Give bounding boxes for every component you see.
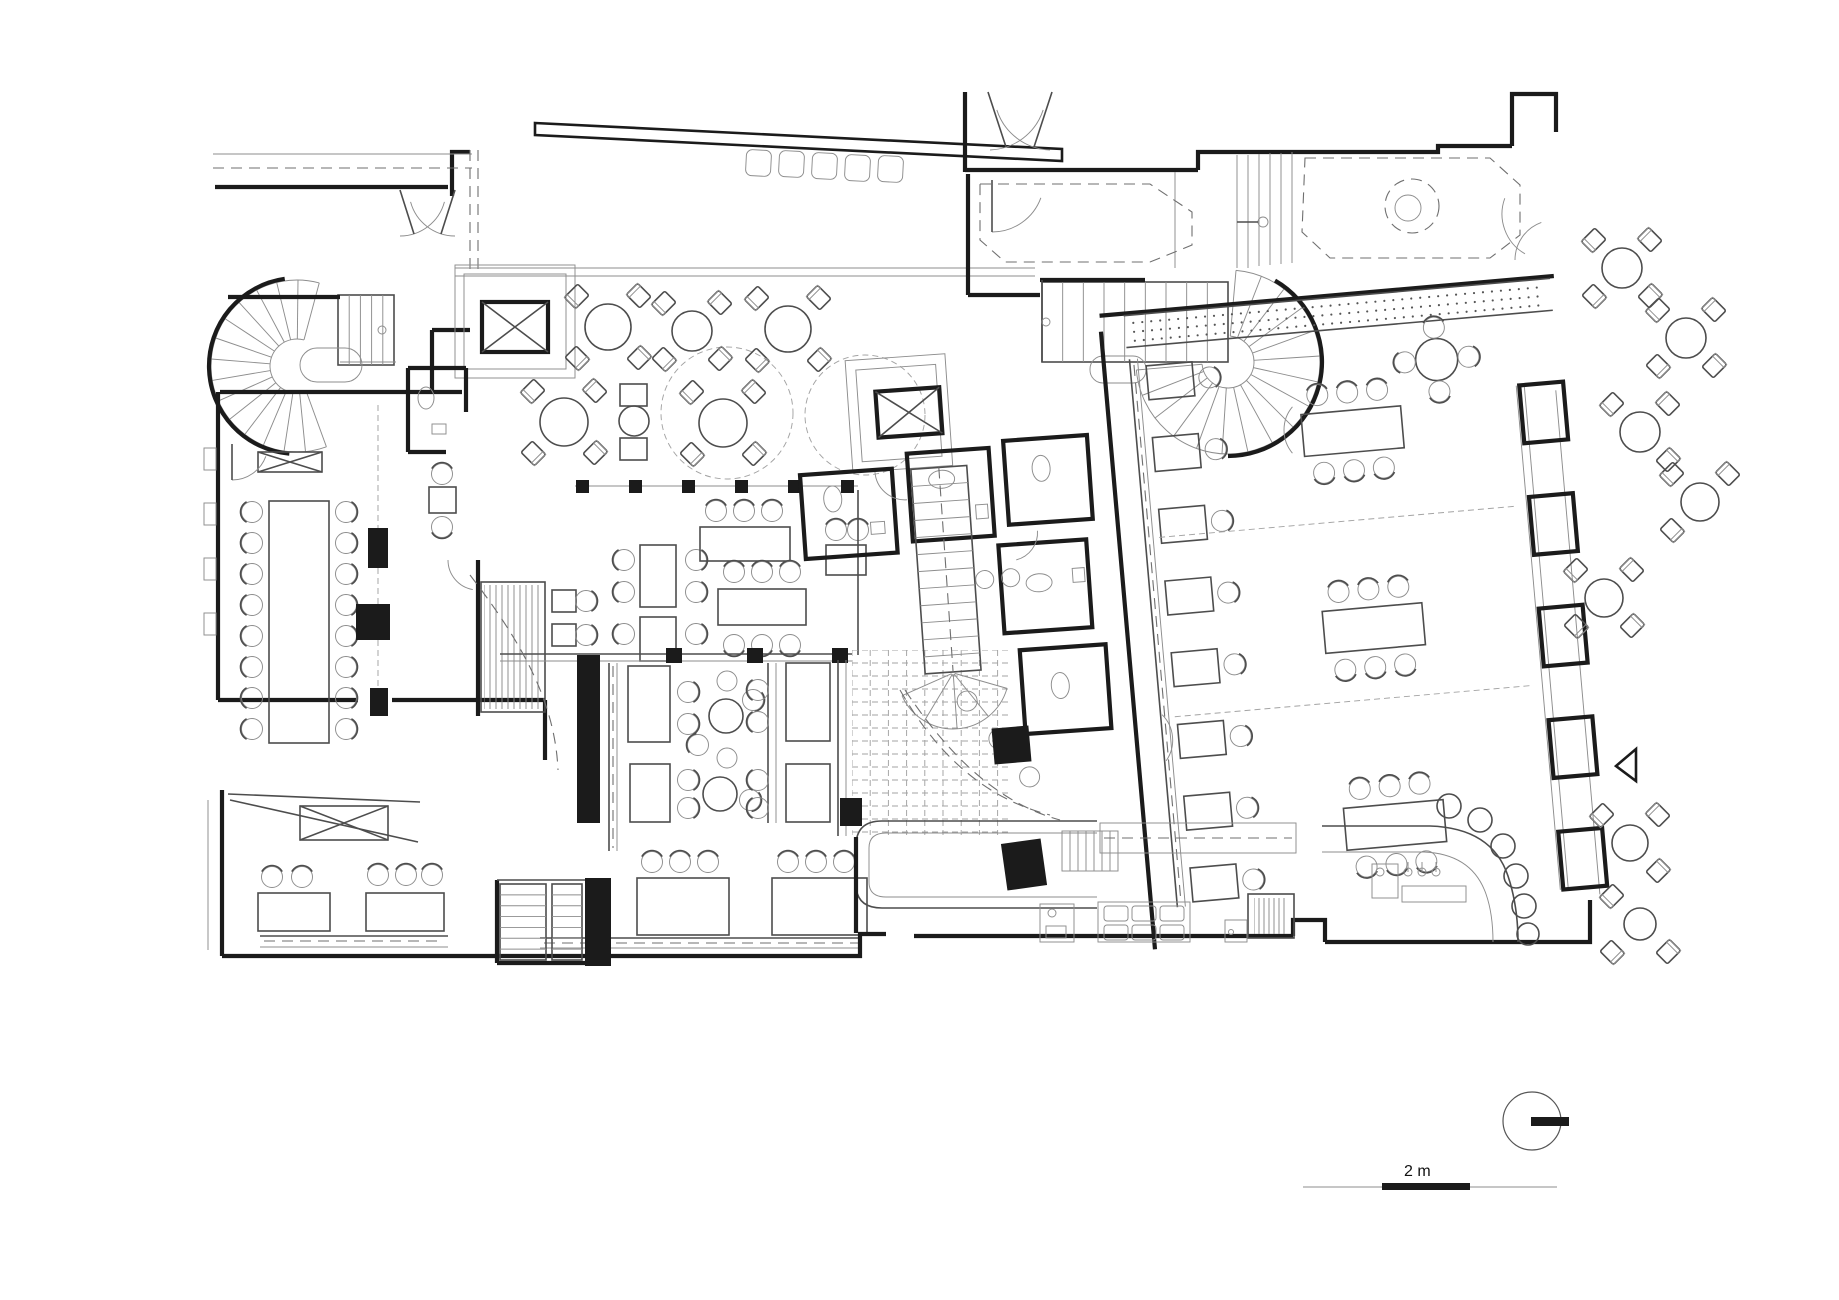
furniture-rect (1372, 864, 1398, 898)
furniture-rect (907, 448, 995, 542)
diamond-chair-seat (1582, 284, 1607, 309)
dot-band-dot (1356, 302, 1358, 304)
diamond-chair-seat (1646, 354, 1671, 379)
spiral-stair-east (968, 174, 1322, 456)
diamond-chair-back (691, 453, 705, 467)
floor-plan-drawing: 2 m (0, 0, 1839, 1300)
dot-band-dot (1268, 328, 1270, 330)
dot-band-dot (1447, 312, 1449, 314)
dot-band-dot (1286, 326, 1288, 328)
round-chair (614, 624, 635, 645)
dot-band-dot (1403, 316, 1405, 318)
furniture-rect (1160, 906, 1184, 921)
round-chair (688, 735, 709, 756)
diamond-chair-back (626, 283, 640, 297)
dot-band-dot (1303, 316, 1305, 318)
diamond-chair (708, 346, 733, 371)
round-chair (678, 714, 699, 735)
dining-a (575, 480, 869, 661)
diamond-chair-back (576, 357, 590, 371)
diamond-chair-seat (520, 379, 545, 404)
dot-band-dot (1160, 328, 1162, 330)
round-chair (614, 582, 635, 603)
dot-band-dot (1367, 319, 1369, 321)
16-tread (1249, 308, 1302, 347)
table-circle (661, 347, 793, 479)
diamond-chair (1637, 227, 1662, 252)
round-chair (242, 719, 263, 740)
diamond-chair (1655, 391, 1680, 416)
dot-band-dot (1232, 331, 1234, 333)
12-tread (917, 551, 973, 555)
diamond-chair-seat (521, 441, 546, 466)
wall-path (841, 480, 854, 493)
wall-path (370, 688, 388, 716)
round-chair (336, 626, 357, 647)
furniture-rect (1343, 800, 1446, 851)
table-circle (1019, 766, 1040, 787)
round-chair (336, 564, 357, 585)
wall-path (228, 794, 420, 802)
diamond-chair-seat (1619, 557, 1644, 582)
dot-band-dot (1276, 309, 1278, 311)
dot-band-dot (1277, 327, 1279, 329)
diamond-chair-back (744, 297, 758, 311)
diamond-chair (744, 286, 769, 311)
dot-band-dot (1527, 296, 1529, 298)
dot-band-dot (1338, 304, 1340, 306)
wall-path (1516, 386, 1560, 890)
dot-band-dot (1483, 300, 1485, 302)
dot-band-dot (1465, 311, 1467, 313)
15-tread (245, 387, 281, 434)
round-chair (780, 562, 801, 583)
16-tread (1254, 356, 1320, 360)
diamond-chair-back (1659, 473, 1673, 487)
dot-band-dot (1384, 309, 1386, 311)
round-chair (262, 867, 283, 888)
15-tread (212, 371, 270, 381)
diamond-chair-seat (583, 440, 608, 465)
door-arc (448, 560, 473, 590)
dot-band-dot (1509, 298, 1511, 300)
hatch-area (1254, 898, 1284, 934)
diamond-chair-back (1667, 939, 1681, 953)
diamond-chair-seat (1656, 447, 1681, 472)
15-tread (225, 319, 274, 351)
diamond-chair-back (520, 390, 534, 404)
dot-band-dot (1258, 311, 1260, 313)
dot-band-dot (1509, 289, 1511, 291)
door-arc (1515, 222, 1541, 260)
15-tread (218, 377, 272, 401)
16-tread (1253, 368, 1317, 382)
dot-band-dot (1421, 314, 1423, 316)
dot-band-dot (1428, 296, 1430, 298)
furniture-rect (745, 149, 771, 176)
furniture-rect (976, 504, 989, 519)
dot-band-dot (1178, 327, 1180, 329)
round-chair (576, 591, 597, 612)
furniture-rect (1171, 649, 1220, 687)
table-circle (1414, 337, 1460, 383)
diamond-chair-back (1563, 569, 1577, 583)
table-circle (765, 306, 811, 352)
dot-band-dot (1214, 324, 1216, 326)
diamond-chair (1638, 283, 1663, 308)
dot-band-dot (1214, 333, 1216, 335)
diamond-chair-back (818, 347, 832, 361)
round-chair (762, 501, 783, 522)
dot-band-dot (1339, 313, 1341, 315)
16-tread (1234, 387, 1248, 451)
diamond-chair (1645, 298, 1670, 323)
dot-band-dot (1518, 297, 1520, 299)
diamond-chair-back (1701, 297, 1715, 311)
dot-band-dot (1152, 338, 1154, 340)
table-circle (1491, 834, 1515, 858)
dot-band-dot (1392, 299, 1394, 301)
hatch-area (852, 650, 1008, 835)
dot-band-dot (1358, 320, 1360, 322)
round-chair (678, 682, 699, 703)
round-chair (242, 657, 263, 678)
round-chair (778, 852, 799, 873)
hatch-area (1062, 831, 1118, 871)
dot-band-dot (1492, 299, 1494, 301)
diamond-chair (627, 345, 652, 370)
diamond-chair-seat (627, 345, 652, 370)
dot-band-dot (1536, 286, 1538, 288)
round-chair (242, 533, 263, 554)
table-circle (1620, 412, 1660, 452)
furniture-rect (1322, 603, 1425, 654)
dot-band-dot (1294, 317, 1296, 319)
diamond-chair-seat (742, 441, 767, 466)
diamond-chair-back (1581, 239, 1595, 253)
dot-band-dot (1321, 314, 1323, 316)
dot-band-dot (1456, 311, 1458, 313)
spiral-stair-west (209, 279, 396, 454)
diamond-chair (520, 379, 545, 404)
table-circle (378, 326, 386, 334)
dot-band-dot (1455, 293, 1457, 295)
wall-path (1124, 278, 1550, 315)
door-arc (411, 202, 455, 236)
dot-band-dot (1527, 287, 1529, 289)
furniture-rect (870, 521, 885, 534)
wall-path (1034, 92, 1052, 147)
round-chair (242, 595, 263, 616)
furniture-rect (258, 893, 330, 931)
dot-band-dot (1429, 305, 1431, 307)
diamond-chair (679, 380, 704, 405)
15-tread (300, 393, 306, 452)
diamond-chair (741, 379, 766, 404)
wall-path (682, 480, 695, 493)
dot-band-dot (1420, 306, 1422, 308)
dot-band-dot (1150, 320, 1152, 322)
round-chair (242, 502, 263, 523)
dot-band-dot (1179, 336, 1181, 338)
dot-band-dot (1204, 315, 1206, 317)
15-tread (297, 280, 298, 339)
15-tread (284, 393, 293, 451)
conference-room (204, 392, 545, 760)
table-circle (975, 570, 994, 589)
diamond-chair-seat (1620, 613, 1645, 638)
diamond-chair-seat (1600, 940, 1625, 965)
dot-band-dot (1402, 307, 1404, 309)
dot-band-dot (1412, 315, 1414, 317)
diamond-chair-seat (565, 346, 590, 371)
4-tread (954, 672, 988, 718)
dot-band-dot (1151, 329, 1153, 331)
12-tread (913, 500, 969, 504)
7 (500, 884, 546, 960)
round-chair (826, 520, 847, 541)
furniture-rect (455, 265, 575, 378)
diamond-chair (1620, 613, 1645, 638)
round-chair (368, 865, 389, 886)
4-tread (921, 675, 955, 721)
round-chair (292, 867, 313, 888)
diamond-chair (1599, 392, 1624, 417)
diamond-chair-seat (1715, 461, 1740, 486)
wall-path (1159, 506, 1518, 537)
dot-band-dot (1196, 334, 1198, 336)
furniture-rect (778, 150, 804, 177)
floor-plan-page: 2 m (0, 0, 1839, 1300)
dot-band-dot (1304, 325, 1306, 327)
furniture-rect (1177, 721, 1226, 759)
furniture-rect (786, 764, 830, 822)
dot-band-dot (1159, 319, 1161, 321)
furniture-rect (204, 503, 216, 525)
dot-band-dot (1348, 312, 1350, 314)
scale-label: 2 m (1404, 1163, 1431, 1180)
diamond-chair-back (1645, 802, 1659, 816)
round-chair (642, 852, 663, 873)
furniture-rect (1184, 792, 1233, 830)
dot-band-dot (1133, 331, 1135, 333)
15-tread (239, 302, 279, 346)
furniture-rect (204, 448, 216, 470)
dot-band-dot (1259, 329, 1261, 331)
furniture-rect (637, 878, 729, 935)
dot-band-dot (1222, 314, 1224, 316)
round-chair (834, 852, 855, 873)
furniture-rect (826, 545, 866, 575)
furniture-rect (1104, 906, 1128, 921)
furniture-rect (552, 624, 576, 646)
wall-path (356, 604, 390, 640)
diamond-chair-back (1657, 365, 1671, 379)
table-circle (1001, 568, 1020, 587)
wall-path (1198, 146, 1512, 170)
dot-band-dot (1349, 321, 1351, 323)
diamond-chair-back (1589, 814, 1603, 828)
diamond-chair (583, 440, 608, 465)
fixture-ellipse (928, 469, 955, 489)
dot-band-dot (1375, 309, 1377, 311)
diamond-chair-back (719, 346, 733, 360)
dot-band-dot (1276, 318, 1278, 320)
15-tread (216, 338, 272, 357)
15 (211, 280, 326, 452)
dot-band-dot (1447, 303, 1449, 305)
dot-band-dot (1456, 302, 1458, 304)
diamond-chair-seat (564, 284, 589, 309)
wall-path (747, 648, 763, 663)
wall-path (840, 798, 862, 826)
diamond-chair-seat (1702, 353, 1727, 378)
table-circle (1042, 318, 1050, 326)
diamond-chair (1600, 940, 1625, 965)
diamond-chair-seat (651, 291, 676, 316)
wall-path (1293, 920, 1325, 942)
dot-band-dot (1500, 298, 1502, 300)
16-tread (1197, 386, 1220, 448)
dot-band-dot (1473, 292, 1475, 294)
dot-band-dot (1330, 313, 1332, 315)
round-chair (686, 550, 707, 571)
diamond-chair-seat (1660, 518, 1685, 543)
dot-band-dot (1293, 308, 1295, 310)
round-chair (748, 712, 769, 733)
16-tread (1251, 375, 1309, 407)
wall-path (666, 648, 682, 663)
wall-path (1322, 852, 1493, 942)
dot-band-dot (1446, 294, 1448, 296)
furniture-rect (772, 878, 867, 935)
door-arc (992, 198, 1041, 232)
dot-band-dot (1170, 336, 1172, 338)
furniture-rect (877, 155, 903, 182)
diamond-chair (1582, 284, 1607, 309)
door-arc (1228, 281, 1322, 456)
round-chair (396, 865, 417, 886)
dot-band-dot (1439, 313, 1441, 315)
dot-band-dot (1143, 339, 1145, 341)
diamond-chair-seat (652, 347, 677, 372)
dot-band-dot (1483, 309, 1485, 311)
furniture-rect (718, 589, 806, 625)
diamond-chair-seat (1659, 462, 1684, 487)
diamond-chair (1656, 447, 1681, 472)
table-circle (1437, 794, 1461, 818)
elevator-box-cross (300, 806, 388, 840)
diamond-chair (652, 347, 677, 372)
diamond-chair-seat (1655, 391, 1680, 416)
wall-path (735, 480, 748, 493)
diamond-chair (521, 441, 546, 466)
table-circle (1585, 579, 1623, 617)
dot-band-dot (1267, 319, 1269, 321)
diamond-chair-seat (1637, 227, 1662, 252)
wall-path (452, 152, 470, 196)
table-circle (1624, 908, 1656, 940)
diamond-chair (1581, 228, 1606, 253)
furniture-rect (432, 424, 446, 434)
dot-band-dot (1465, 302, 1467, 304)
dot-band-dot (1249, 320, 1251, 322)
table-circle (703, 777, 737, 811)
round-chair (724, 635, 745, 656)
dot-band-dot (1240, 312, 1242, 314)
diamond-chair-back (663, 358, 677, 372)
diamond-chair (742, 441, 767, 466)
dot-band-dot (1492, 308, 1494, 310)
round-chair (336, 657, 357, 678)
diamond-chair-back (1655, 391, 1669, 405)
dot-band-dot (1518, 288, 1520, 290)
dot-band-dot (1340, 322, 1342, 324)
wall-path (1126, 310, 1552, 347)
wall-path (1616, 749, 1636, 781)
dot-band-dot (1365, 301, 1367, 303)
dot-band-dot (1168, 319, 1170, 321)
table-circle (1681, 483, 1719, 521)
16-tread (1246, 380, 1293, 427)
wall-path (1556, 900, 1590, 942)
diamond-chair-back (1645, 309, 1659, 323)
round-chair (432, 464, 453, 485)
dot-band-dot (1383, 300, 1385, 302)
table-circle (1666, 318, 1706, 358)
diamond-chair-back (1667, 447, 1681, 461)
top-mid-rooms (965, 92, 1556, 268)
round-chair (336, 533, 357, 554)
diamond-chair (806, 285, 831, 310)
diamond-chair-seat (1563, 558, 1588, 583)
diamond-chair-seat (582, 378, 607, 403)
wall-path (1302, 158, 1520, 258)
dot-band-dot (1195, 316, 1197, 318)
door-arc (232, 456, 266, 480)
dot-band-dot (1536, 295, 1538, 297)
table-circle (1385, 179, 1439, 233)
dot-band-dot (1410, 297, 1412, 299)
diamond-chair (651, 291, 676, 316)
cafe (455, 268, 1035, 479)
diamond-chair (1646, 858, 1671, 883)
fixture-ellipse (1031, 455, 1051, 482)
diamond-chair (1563, 558, 1588, 583)
7 (552, 884, 582, 960)
fixture-ellipse (1025, 573, 1052, 593)
furniture-rect (1072, 568, 1085, 583)
dot-band-dot (1393, 308, 1395, 310)
wall-path (1531, 1117, 1569, 1126)
round-chair (806, 852, 827, 873)
diamond-chair-back (1631, 613, 1645, 627)
diamond-chair (707, 290, 732, 315)
furniture-rect (1165, 577, 1214, 615)
wall-path (1382, 1183, 1470, 1190)
15-tread (306, 391, 326, 446)
dot-band-dot (1385, 318, 1387, 320)
table-circle (1395, 195, 1421, 221)
round-chair (686, 624, 707, 645)
furniture-rect (1159, 505, 1208, 543)
diamond-chair-back (1611, 951, 1625, 965)
wall-path (585, 878, 611, 966)
furniture-rect (811, 152, 837, 179)
furniture-rect (786, 663, 830, 741)
16-tread (1174, 383, 1213, 436)
diamond-chair (1646, 354, 1671, 379)
